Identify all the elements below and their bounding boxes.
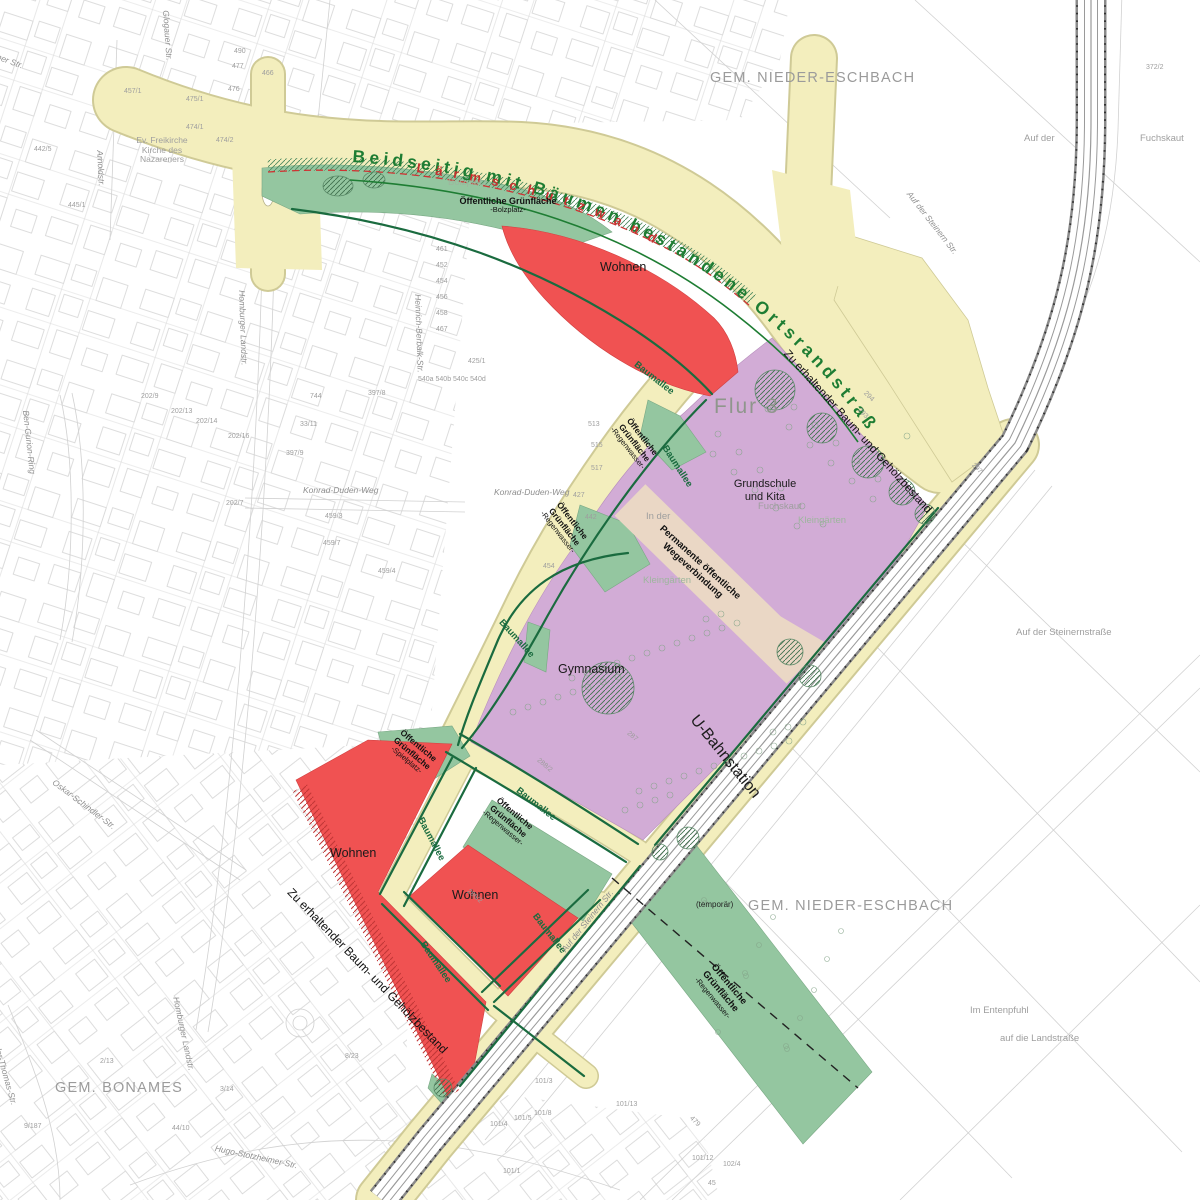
tree-icon (839, 929, 844, 934)
tree-icon (825, 957, 830, 962)
tree-icon (812, 988, 817, 993)
plan-map-stage: Beidseitig mit Bäumen bestandene Ortsran… (0, 0, 1200, 1200)
tree-icon (771, 915, 776, 920)
development-plan-map: Beidseitig mit Bäumen bestandene Ortsran… (0, 0, 1200, 1200)
